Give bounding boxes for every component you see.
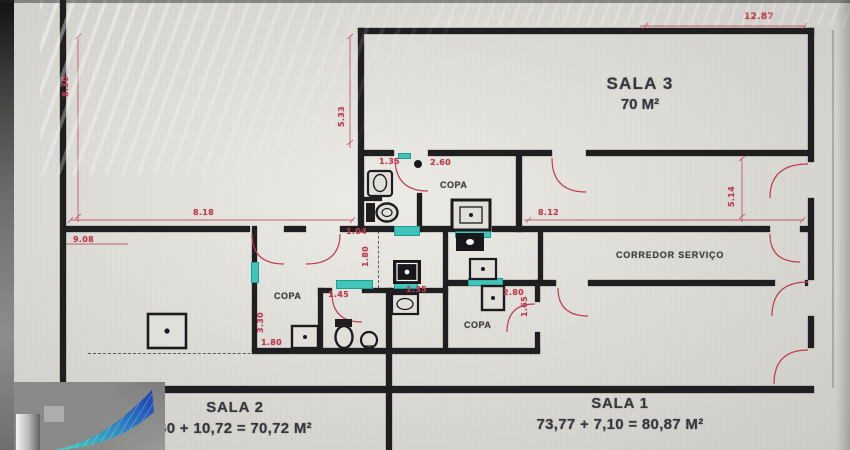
room-label-sala3: SALA 3 70 M² <box>545 74 735 113</box>
wall-segment <box>428 150 520 156</box>
wall-segment <box>443 232 448 352</box>
wall-segment <box>808 198 814 280</box>
room-name: SALA 3 <box>545 74 735 94</box>
toilet-icon <box>335 319 353 348</box>
wall-segment <box>364 150 394 156</box>
toilet-icon <box>366 203 398 222</box>
dimension-label: 5.14 <box>728 186 736 207</box>
room-label-copa-right: COPA <box>464 320 491 330</box>
room-label-corridor: CORREDOR SERVIÇO <box>616 250 724 260</box>
opening-highlight <box>336 280 373 289</box>
door-arc <box>770 234 800 262</box>
logo-background <box>0 382 165 450</box>
opening-highlight <box>455 227 491 238</box>
wall-segment <box>535 280 540 302</box>
door-arc <box>774 350 808 384</box>
dimension-label: 8.18 <box>193 209 214 217</box>
wall-segment <box>358 28 364 232</box>
dimension-label: 12.87 <box>744 13 774 22</box>
wall-segment <box>318 288 323 352</box>
room-area: 70 M² <box>545 96 735 113</box>
dimension-label: 1.35 <box>406 286 427 294</box>
room-label-sala1: SALA 1 73,77 + 7,10 = 80,87 M² <box>500 395 740 433</box>
wall-segment <box>364 197 382 201</box>
cabinet-icon <box>292 326 318 348</box>
door-hinge-dot <box>414 160 422 168</box>
dimension-label: 2.60 <box>430 159 451 167</box>
dimension-label: 3.30 <box>257 312 265 333</box>
opening-highlight <box>394 226 420 236</box>
dimension-label: 9.08 <box>73 236 94 244</box>
wall-segment <box>386 288 392 450</box>
dimension-lines <box>66 23 807 244</box>
wall-segment <box>520 150 552 156</box>
dashed-line <box>378 231 379 288</box>
door-arc <box>306 234 340 264</box>
washbasin-icon <box>392 294 418 314</box>
wall-segment <box>516 156 522 232</box>
room-area: 73,77 + 7,10 = 80,87 M² <box>500 416 740 433</box>
wall-segment <box>60 386 814 393</box>
dimension-label: 8.30 <box>62 76 70 97</box>
room-label-copa-left: COPA <box>274 291 301 301</box>
wall-segment <box>284 226 306 232</box>
dimension-label: 1.65 <box>521 296 529 317</box>
opening-highlight <box>251 262 259 283</box>
dimension-label: 1.35 <box>379 158 400 166</box>
screen-edge-left <box>0 0 14 450</box>
floor-plan-photo: 8.30 5.33 12.87 8.18 8.12 5.14 9.08 1.04… <box>0 0 850 450</box>
wall-segment <box>588 280 775 286</box>
wall-segment <box>420 226 455 232</box>
door-arc <box>552 158 586 192</box>
dimension-label: 1.04 <box>346 228 367 236</box>
wall-segment <box>252 226 257 352</box>
door-arc <box>770 164 808 198</box>
screen-edge-top <box>0 0 850 3</box>
outer-guide-line <box>832 30 834 388</box>
stove-icon <box>482 286 504 310</box>
sink-icon <box>368 171 392 196</box>
door-arc <box>558 288 588 316</box>
wall-segment <box>586 150 808 156</box>
wall-segment <box>800 226 808 232</box>
screen-edge-right <box>836 0 850 450</box>
dimension-label: 1.45 <box>328 291 349 299</box>
wall-segment <box>358 28 814 34</box>
dimension-label: 5.33 <box>338 106 346 127</box>
cabinet-icon <box>148 314 186 348</box>
wall-segment <box>66 226 250 232</box>
wall-segment <box>808 316 814 348</box>
door-arc <box>772 282 808 316</box>
room-label-copa-upper: COPA <box>440 180 467 190</box>
wall-segment <box>805 280 808 286</box>
room-name: SALA 1 <box>500 395 740 412</box>
wall-segment <box>492 226 770 232</box>
opening-highlight <box>468 278 503 286</box>
wall-segment <box>808 28 814 162</box>
stove-icon <box>452 200 490 230</box>
counter-icon <box>470 259 496 279</box>
dimension-label: 8.12 <box>538 209 559 217</box>
dimension-label: 1.80 <box>261 339 282 347</box>
dashed-line <box>88 353 540 354</box>
wall-segment <box>538 232 543 280</box>
wall-segment <box>60 0 66 392</box>
dimension-label: 1.80 <box>362 246 370 267</box>
